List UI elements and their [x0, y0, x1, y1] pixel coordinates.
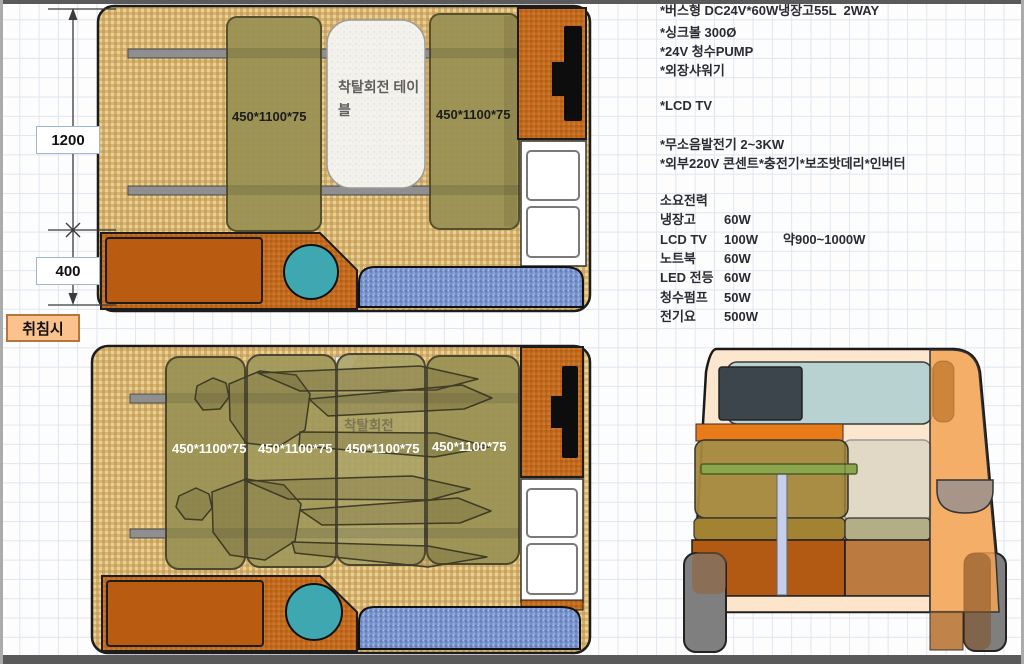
bumper	[700, 596, 930, 612]
power-table-title: 소요전력	[660, 192, 708, 209]
canvas-edge-top	[0, 0, 1024, 4]
tv-screen-rear	[719, 367, 802, 420]
bench-band	[430, 48, 519, 58]
power-row-value: 100W	[724, 231, 758, 248]
spec-line: *버스형 DC24V*60W냉장고55L 2WAY	[660, 2, 879, 19]
door-handle	[937, 480, 993, 513]
tv-screen	[564, 26, 582, 121]
bed-panel1-size-label: 450*1100*75	[172, 440, 256, 457]
plans-artwork	[0, 0, 1024, 664]
storage-window	[527, 544, 577, 594]
tv-mount	[551, 396, 563, 428]
table-pedestal-pole	[777, 473, 787, 595]
power-row-label: 전기요	[660, 308, 722, 325]
spec-line: *무소음발전기 2~3KW	[660, 136, 784, 153]
bench-band	[430, 185, 519, 195]
storage-window	[527, 151, 579, 200]
rotating-table-label: 착탈회전 테이블	[338, 76, 420, 122]
interior-panel	[843, 440, 931, 520]
tv-screen	[562, 366, 578, 458]
spec-line: *LCD TV	[660, 97, 712, 114]
van-rear-view	[684, 349, 1006, 652]
spec-line: *24V 청수PUMP	[660, 43, 753, 60]
floor-plan-day	[98, 6, 590, 311]
sink-bowl	[286, 584, 342, 640]
wheel-arch-shade	[692, 552, 726, 594]
power-row-label: LED 전등	[660, 269, 722, 286]
power-row-label: 청수펌프	[660, 289, 722, 306]
power-row-value: 60W	[724, 250, 751, 267]
spec-line: *외부220V 콘센트*충전기*보조밧데리*인버터	[660, 155, 906, 172]
spec-line: *싱크볼 300Ø	[660, 24, 736, 41]
bed-panel2-size-label: 450*1100*75	[258, 440, 342, 457]
storage-window	[527, 207, 579, 257]
counter-top	[106, 238, 262, 303]
door-lower-panel	[930, 612, 963, 650]
power-row-value: 60W	[724, 269, 751, 286]
floor-plan-sleep	[92, 346, 590, 653]
seat-cushion-left	[694, 518, 845, 540]
arrow-up	[69, 8, 78, 20]
under-seat-cabinet-right	[845, 540, 930, 596]
power-row-label: 노트북	[660, 250, 722, 267]
power-total-note: 약900~1000W	[783, 231, 865, 248]
counter-top	[107, 581, 263, 646]
table-top-rear	[701, 464, 857, 474]
entry-step	[359, 607, 580, 649]
orange-trim-band	[696, 424, 843, 441]
table-under-bed-hint: 착탈회전	[344, 414, 394, 434]
canvas-edge-left	[0, 0, 3, 664]
canvas-edge-bottom	[0, 655, 1024, 664]
sleep-mode-badge: 취침시	[6, 314, 80, 342]
sink-bowl	[284, 245, 338, 299]
drawing-canvas: *버스형 DC24V*60W냉장고55L 2WAY *싱크볼 300Ø *24V…	[0, 0, 1024, 664]
storage-window	[527, 489, 577, 537]
door-over-wheel-shade	[964, 553, 991, 650]
seat-cushion-right	[845, 518, 930, 540]
spec-line: *외장샤워기	[660, 62, 725, 79]
power-row-label: LCD TV	[660, 231, 722, 248]
tv-mount	[552, 62, 565, 96]
dimension-label-400: 400	[36, 257, 100, 285]
power-row-value: 50W	[724, 289, 751, 306]
bench2-size-label: 450*1100*75	[436, 106, 522, 123]
door-window-tint	[933, 361, 954, 422]
bed-panel4-size-label: 450*1100*75	[432, 438, 520, 455]
entry-step	[359, 267, 583, 307]
power-row-label: 냉장고	[660, 211, 722, 228]
power-row-value: 60W	[724, 211, 751, 228]
seat-back	[695, 440, 848, 518]
bed-panel3-size-label: 450*1100*75	[345, 440, 429, 457]
dimension-label-1200: 1200	[36, 126, 100, 154]
arrow-down	[69, 293, 78, 305]
bench-band	[227, 185, 321, 195]
bench1-size-label: 450*1100*75	[232, 108, 320, 125]
power-row-value: 500W	[724, 308, 758, 325]
bench-band	[227, 48, 321, 58]
